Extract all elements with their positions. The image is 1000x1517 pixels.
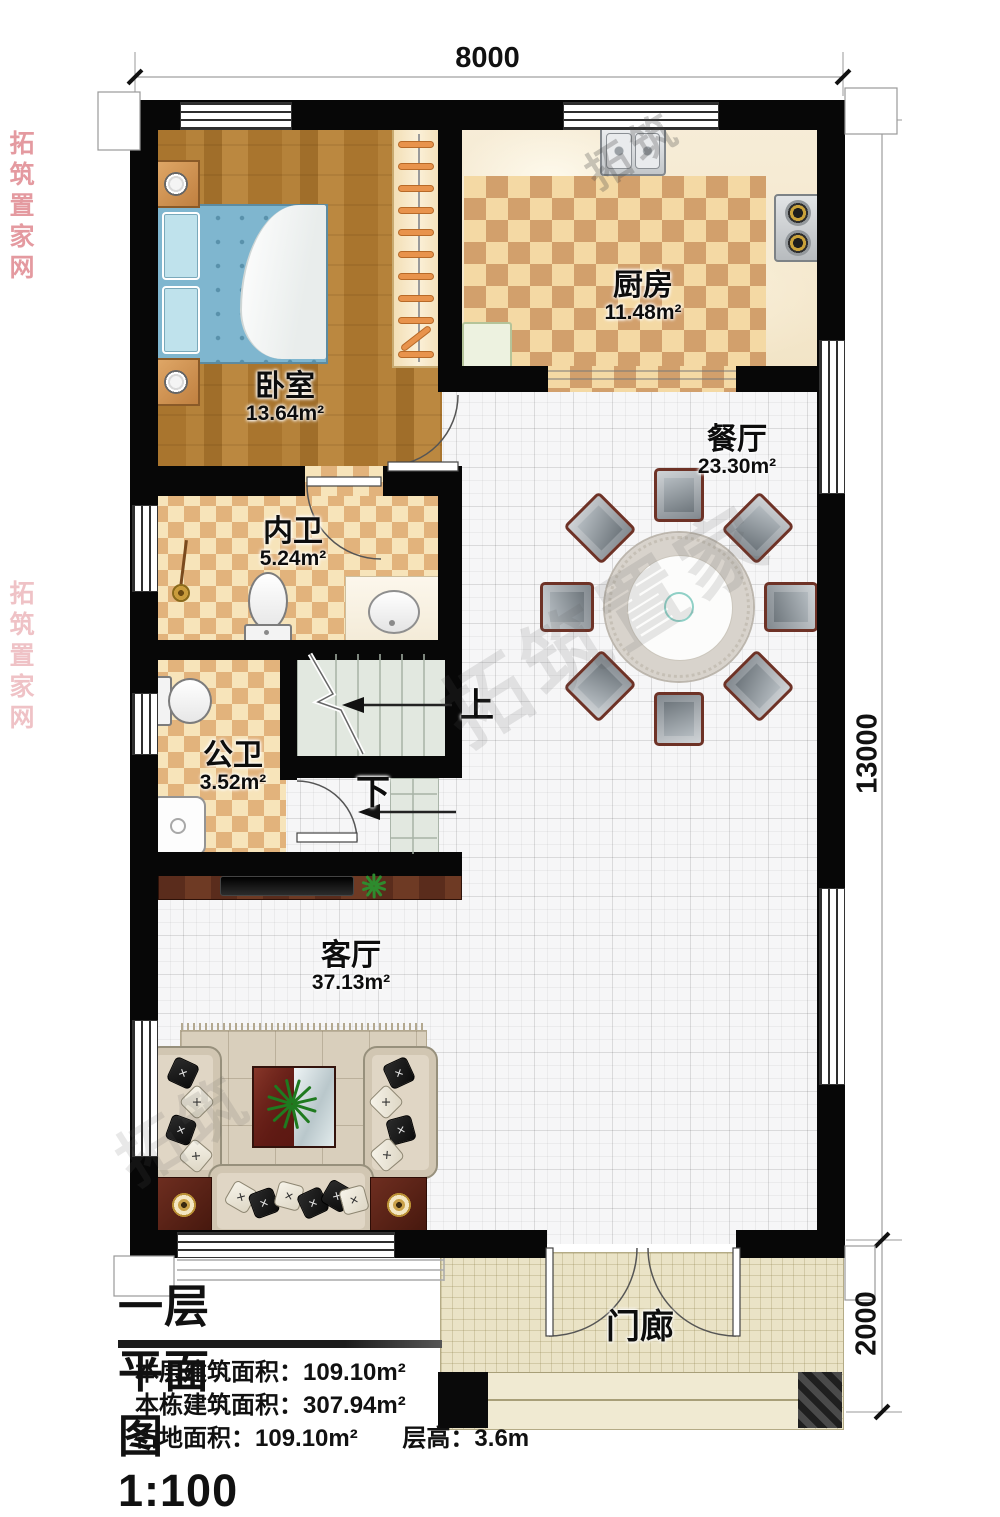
stat-footprint: 占地面积：109.10m² 层高：3.6m	[135, 1418, 529, 1453]
dimension-width: 8000	[450, 42, 525, 75]
hanger-icon	[399, 230, 433, 235]
window	[132, 693, 158, 755]
stairs-down-area	[390, 778, 439, 856]
hanger-icon	[399, 274, 433, 279]
wall-bath-divider	[130, 640, 462, 660]
hanger-icon	[399, 142, 433, 147]
window	[563, 102, 719, 130]
stairs-up-label: 上	[460, 689, 494, 725]
toilet	[168, 678, 212, 724]
window	[177, 1232, 395, 1258]
porch-step-line	[488, 1399, 800, 1401]
room-label-bedroom: 卧室13.64m²	[246, 371, 324, 425]
shower-tray	[150, 796, 206, 856]
window	[132, 1020, 158, 1157]
dimension-porch: 2000	[851, 1274, 884, 1374]
toilet-flush-dot	[264, 630, 269, 635]
title-underline	[118, 1340, 442, 1348]
watermark-red: 拓筑置家网	[2, 580, 38, 735]
bath-inner-door-tiles	[305, 466, 383, 496]
burner-icon	[785, 230, 811, 256]
hanger-icon	[399, 252, 433, 257]
hanger-icon	[399, 352, 433, 357]
window	[819, 888, 845, 1085]
wall-bath-inner-right	[438, 496, 462, 648]
wall-bottom-right	[736, 1230, 845, 1258]
room-label-porch: 门廊	[606, 1310, 674, 1346]
wardrobe	[392, 128, 444, 368]
hanger-icon	[399, 164, 433, 169]
coffee-table	[252, 1066, 336, 1148]
window	[132, 505, 158, 592]
coffee-table-glass	[294, 1068, 334, 1146]
dimension-height: 13000	[852, 704, 885, 804]
dining-table-top	[627, 555, 733, 661]
wall-bedroom-kitchen	[438, 130, 462, 392]
wall-hall-bottom	[158, 852, 462, 876]
watermark-red: 拓筑置家网	[2, 130, 38, 285]
wall-bedroom-bottom-a	[158, 466, 305, 496]
dining-chair	[654, 468, 704, 522]
wall-kitchen-bottom-left	[456, 366, 548, 392]
sink-basin	[606, 133, 632, 169]
hanger-icon	[399, 318, 433, 323]
tv	[220, 876, 354, 896]
dining-chair	[764, 582, 818, 632]
side-table	[155, 1177, 212, 1232]
room-label-bath-inner: 内卫5.24m²	[260, 516, 327, 570]
stairs-up-area	[297, 652, 449, 760]
room-label-bath-public: 公卫3.52m²	[200, 740, 267, 794]
nightstand	[152, 358, 200, 406]
stat-floor-area: 本层建筑面积：109.10m²	[135, 1352, 406, 1387]
side-table	[370, 1177, 427, 1232]
kitchen-entry-tiles	[548, 366, 736, 392]
room-label-dining: 餐厅23.30m²	[698, 424, 776, 478]
room-label-living: 客厅37.13m²	[312, 940, 390, 994]
nightstand	[152, 160, 200, 208]
sink-basin	[635, 133, 661, 169]
window	[819, 340, 845, 494]
wall-bedroom-bottom-b	[383, 466, 462, 496]
coffee-table-wood	[254, 1068, 294, 1146]
porch-column	[798, 1372, 842, 1428]
dining-chair	[654, 692, 704, 746]
kitchen-sink	[600, 126, 666, 176]
basin-faucet-dot	[389, 620, 395, 626]
bed-pillow	[162, 212, 200, 280]
burner-icon	[785, 200, 811, 226]
kitchen-counter	[462, 322, 512, 370]
room-label-kitchen: 厨房11.48m²	[604, 270, 681, 324]
hanger-icon	[401, 326, 431, 351]
vanity-basin	[368, 590, 420, 634]
bed-pillow	[162, 286, 200, 354]
hanger-icon	[399, 296, 433, 301]
hanger-icon	[399, 208, 433, 213]
wall-bath-public-right	[280, 660, 297, 780]
stove	[774, 194, 822, 262]
window	[180, 102, 292, 130]
hanger-icon	[399, 186, 433, 191]
stairs-down-label: 下	[356, 776, 390, 812]
dining-chair	[540, 582, 594, 632]
stat-total-area: 本栋建筑面积：307.94m²	[135, 1385, 406, 1420]
toilet	[248, 572, 288, 630]
floor-drain	[172, 584, 190, 602]
floor-plan: ✕✕✕✕✕✕✕✕✕✕✕✕✕✕	[0, 0, 1000, 1485]
